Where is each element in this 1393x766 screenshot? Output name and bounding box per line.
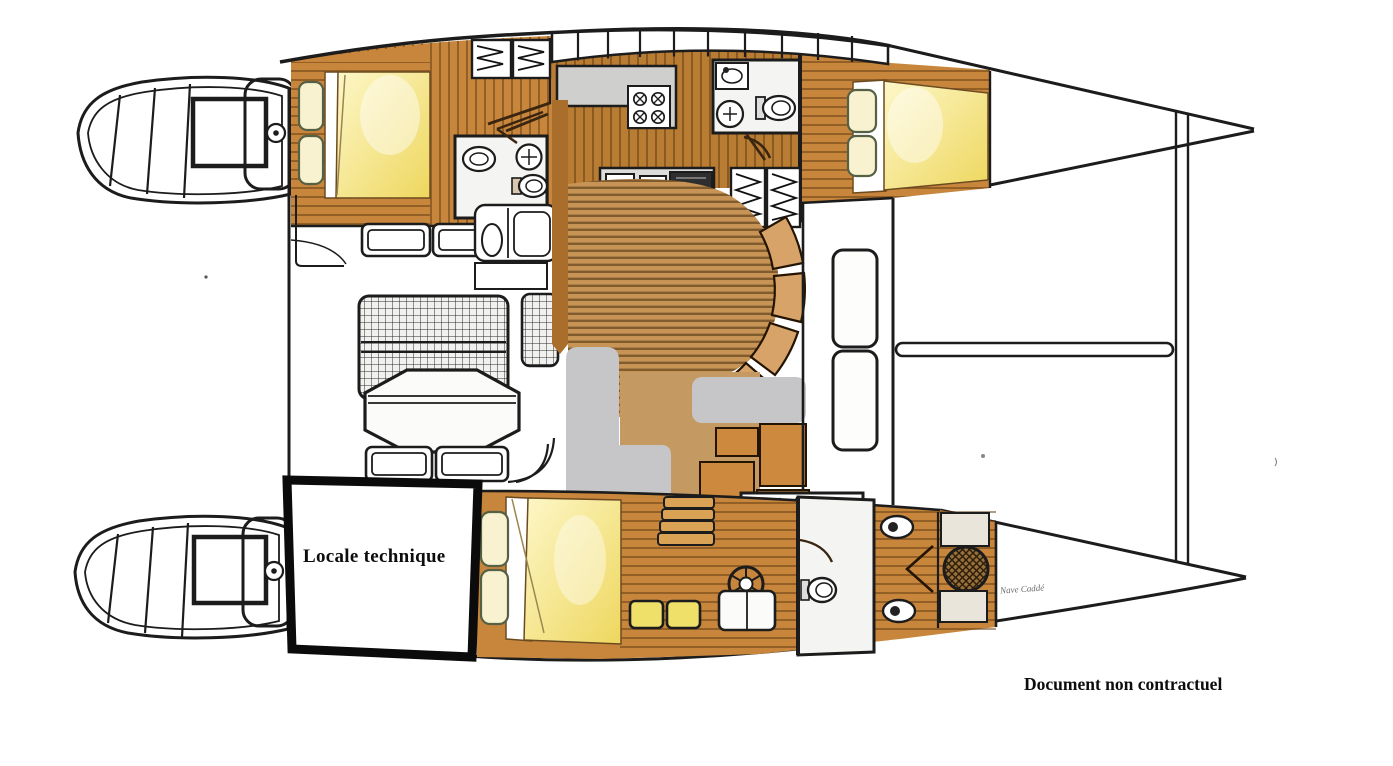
disclaimer-label: Document non contractuel — [1024, 674, 1222, 695]
stove-icon — [628, 86, 670, 128]
technical-room-label: Locale technique — [303, 546, 446, 568]
salon-bench-aft — [366, 447, 508, 481]
floor-plan-drawing — [0, 0, 1393, 766]
port-stern-platform — [78, 77, 295, 203]
pillow — [481, 570, 508, 624]
companionway-steps — [658, 497, 714, 545]
pillow — [481, 512, 508, 566]
deck-cushion — [833, 351, 877, 450]
cockpit — [566, 179, 863, 525]
toilet-icon — [519, 175, 547, 197]
hanging-locker — [472, 40, 550, 78]
deck-hatch — [194, 537, 266, 603]
hull-window — [667, 601, 700, 628]
pillow — [848, 136, 876, 176]
pillow — [299, 136, 323, 184]
pillow — [848, 90, 876, 132]
pillow — [299, 82, 323, 130]
deck-hatch — [193, 99, 266, 166]
aft-head — [798, 497, 874, 655]
nav-station — [475, 205, 557, 289]
deck-divider-bar — [896, 343, 1173, 356]
deck-cushion — [833, 250, 877, 347]
aft-cabin-bed — [481, 497, 621, 644]
gray-patch-rect — [692, 377, 806, 423]
salon-table — [365, 370, 519, 452]
catamaran-floor-plan: Locale technique Nave Caddé Document non… — [0, 0, 1393, 766]
mast-post — [552, 100, 568, 354]
starboard-hull-interior — [477, 491, 996, 659]
starboard-stern-platform — [75, 516, 293, 638]
starboard-cabin-bed — [848, 80, 988, 193]
technical-room-box — [287, 480, 478, 657]
sink-icon — [463, 147, 495, 171]
hull-window — [630, 601, 663, 628]
shower-grate-icon — [944, 547, 988, 591]
